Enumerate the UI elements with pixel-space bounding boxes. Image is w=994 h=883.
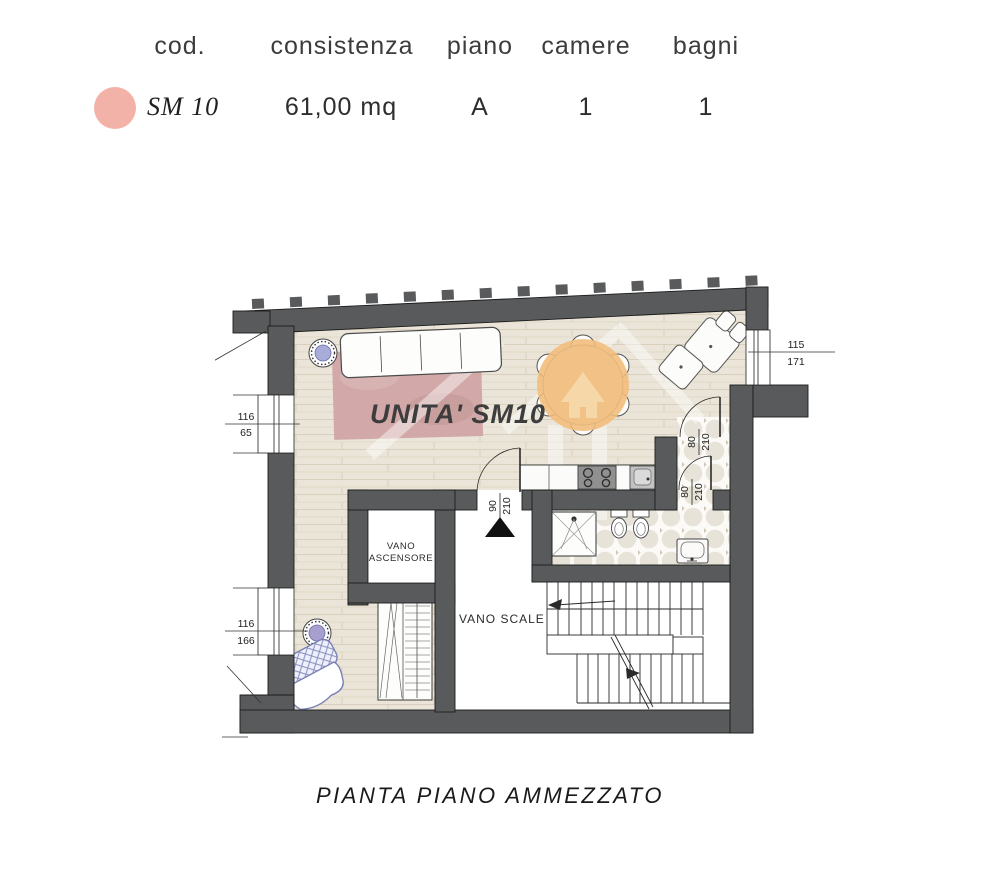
dim-win-left-top-w: 116 — [238, 411, 255, 423]
wall-living-hall — [655, 437, 677, 510]
side-table-top — [309, 339, 337, 367]
wardrobe — [378, 600, 432, 700]
bathroom-sink — [677, 539, 708, 563]
toilet — [611, 510, 627, 538]
unit-code: SM 10 — [147, 92, 219, 122]
wall-right — [730, 385, 753, 733]
dim-win-left-bottom-h: 166 — [237, 635, 255, 647]
shower — [552, 512, 596, 556]
floor-plan: 116 65 116 166 115 171 90 210 80 210 80 … — [215, 270, 835, 750]
page: cod. consistenza piano camere bagni SM 1… — [0, 0, 994, 883]
unit-bagni: 1 — [699, 93, 714, 122]
svg-text:210: 210 — [501, 497, 513, 515]
wall-window-right-top — [746, 287, 768, 330]
label-elevator-2: ASCENSORE — [369, 553, 433, 564]
bidet — [633, 510, 649, 538]
unit-consistenza: 61,00 mq — [285, 93, 397, 122]
window-left-bottom — [258, 588, 294, 655]
svg-text:210: 210 — [693, 483, 705, 501]
label-unit: UNITA' SM10 — [370, 399, 546, 429]
label-stairs: VANO SCALE — [459, 612, 545, 626]
wall-bath-bottom — [532, 565, 730, 582]
wall-right-stub — [753, 385, 808, 417]
unit-marker — [91, 85, 139, 131]
dim-win-right-h: 171 — [787, 356, 805, 368]
dim-win-left-bottom-w: 116 — [238, 618, 255, 630]
unit-piano: A — [471, 93, 489, 122]
wall-left-1 — [268, 326, 294, 395]
wall-bottom — [240, 710, 753, 733]
col-bagni: bagni — [673, 32, 739, 61]
svg-text:80: 80 — [686, 436, 698, 448]
cooktop — [578, 466, 616, 489]
wall-stairwell-left — [435, 510, 455, 712]
col-camere: camere — [541, 32, 630, 61]
dim-win-left-top-h: 65 — [240, 427, 252, 439]
wall-elevator-top — [348, 490, 455, 510]
dim-win-right-w: 115 — [788, 339, 805, 351]
col-piano: piano — [447, 32, 513, 61]
svg-text:90: 90 — [487, 500, 499, 512]
svg-text:210: 210 — [700, 433, 712, 451]
wall-left-2 — [268, 453, 294, 588]
unit-camere: 1 — [579, 93, 594, 122]
kitchen-counter — [520, 465, 655, 490]
label-elevator-1: VANO — [387, 541, 415, 552]
sofa — [340, 327, 502, 378]
unit-marker-dot — [94, 87, 136, 129]
col-consistenza: consistenza — [270, 32, 413, 61]
wall-hall-bump — [713, 490, 730, 510]
col-cod: cod. — [154, 32, 205, 61]
svg-text:80: 80 — [679, 486, 691, 498]
wall-top-left-stub — [233, 311, 270, 333]
plan-caption: PIANTA PIANO AMMEZZATO — [316, 783, 664, 809]
